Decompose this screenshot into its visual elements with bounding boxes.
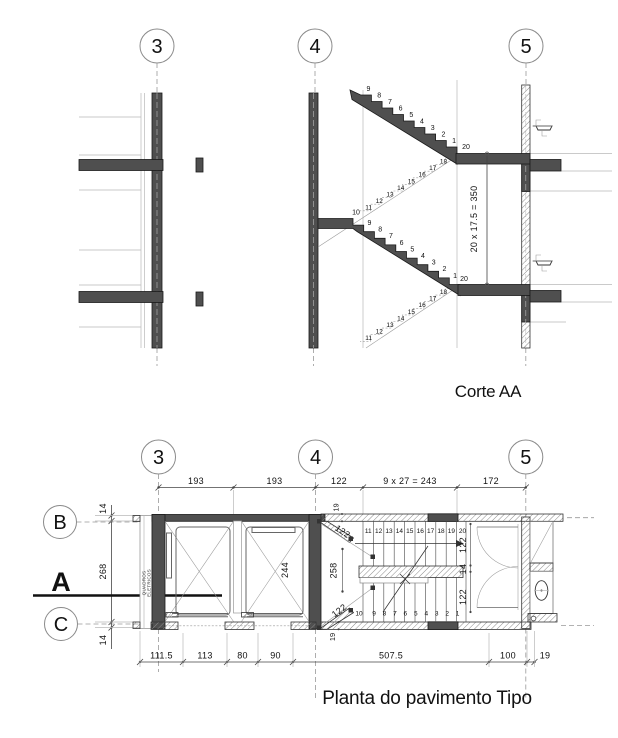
- dimension-label: 14: [98, 503, 108, 514]
- stair-number: 17: [429, 165, 437, 172]
- stair-number: 4: [424, 611, 428, 618]
- wall-row-c-masonry: [321, 622, 531, 629]
- elevator-shaft-1: [165, 521, 234, 621]
- stair-number: 2: [445, 611, 449, 618]
- stair-number: 16: [418, 302, 426, 309]
- stair-rise-dimension: 20 x 17.5 = 350: [469, 152, 489, 286]
- shaft-divider-wall: [234, 521, 242, 613]
- stair-flight-lower: [318, 219, 460, 296]
- stair-number: 3: [431, 125, 435, 132]
- stair-number: 18: [440, 159, 448, 166]
- hidden-upper-numbers: 1817161514131211: [365, 159, 447, 212]
- stair-number: 12: [376, 329, 384, 336]
- door-sill: [291, 622, 316, 630]
- wall-row-b: [152, 515, 325, 522]
- stair-number: 8: [377, 93, 381, 100]
- electrical-niche: QUADROS ELETRICOS: [133, 516, 152, 629]
- elevator-car: [176, 527, 230, 615]
- plan-title: Planta do pavimento Tipo: [322, 688, 532, 709]
- stair-number: 17: [427, 528, 435, 535]
- wall-grid-5: [522, 517, 530, 629]
- dimension-label: 268: [98, 564, 108, 580]
- stair-number: 3: [432, 260, 436, 267]
- plan-bottom-dimensions: 111.5 113 80 90 507.5 100 19: [137, 631, 550, 667]
- wall-grid-4: [309, 515, 321, 630]
- plan-pavimento-tipo: 3 4 5 B C: [33, 440, 594, 709]
- section-corte-aa: 3 4 5: [79, 29, 612, 401]
- grid-label: 3: [151, 36, 162, 58]
- stair-number: 16: [417, 528, 425, 535]
- stair-number: 14: [396, 528, 404, 535]
- stair-number: 11: [365, 335, 372, 342]
- dimension-label: 122: [458, 589, 468, 605]
- stair-number: 7: [393, 611, 397, 618]
- dimension-label: 100: [500, 651, 516, 661]
- wall-column-block: [428, 514, 458, 522]
- dimension-label: 122: [331, 476, 347, 486]
- right-annex: [528, 522, 557, 623]
- stair-number: 4: [421, 253, 425, 260]
- double-door: [477, 524, 518, 610]
- step-number: 10: [352, 210, 360, 217]
- stair-number: 5: [414, 611, 418, 618]
- section-cut-label: A: [51, 567, 71, 597]
- hidden-lower-numbers: 1817161514131211: [365, 289, 447, 342]
- section-title: Corte AA: [455, 382, 522, 401]
- counterweight: [167, 533, 172, 578]
- stair-number: 1: [456, 611, 460, 618]
- stair-number: 2: [441, 132, 445, 139]
- section-grid-bubbles: 3 4 5: [140, 29, 543, 366]
- stair-number: 19: [448, 528, 456, 535]
- dimension-label: 193: [188, 476, 204, 486]
- wall-thickness-label: 19: [332, 503, 341, 511]
- step-number: 20: [462, 144, 470, 151]
- grid-label: 4: [309, 36, 320, 58]
- dimension-label: 9 x 27 = 243: [383, 476, 436, 486]
- stair-number: 18: [437, 528, 445, 535]
- plan-bottom-run-numbers: 987654321: [372, 611, 460, 618]
- stair-number: 8: [378, 227, 382, 234]
- dimension-label: 111.5: [150, 651, 173, 661]
- stair-number: 7: [389, 233, 393, 240]
- floor-slab-level2: [458, 285, 530, 296]
- dimension-label: 14: [458, 564, 468, 575]
- stair-number: 15: [406, 528, 414, 535]
- stair-number: 15: [408, 178, 416, 185]
- sink-icon: [532, 120, 553, 136]
- step-number: 20: [460, 276, 468, 283]
- row-label: C: [54, 614, 68, 636]
- beam-section: [196, 292, 203, 306]
- plan-top-run-numbers: 111213141516171819: [365, 528, 456, 535]
- drawing-canvas: 3 4 5: [0, 0, 618, 738]
- dimension-label: 507.5: [379, 651, 403, 661]
- elevator-block: 244: [151, 515, 325, 630]
- stair-number: 14: [397, 185, 405, 192]
- wall-thickness-label: 19: [328, 633, 337, 641]
- stair-flight-upper: [350, 90, 457, 164]
- dimension-label: 90: [270, 651, 281, 661]
- shaft-dimension: 244: [280, 562, 290, 578]
- plan-top-dimensions: 193 193 122 9 x 27 = 243 172: [156, 476, 529, 514]
- elevator-shaft-2: 244: [242, 521, 310, 621]
- lower-flight-numbers: 987654321: [368, 220, 458, 280]
- wall-left: [152, 515, 165, 630]
- door-sill: [225, 622, 254, 630]
- stair-number: 18: [440, 289, 448, 296]
- beam: [530, 160, 561, 172]
- stair-number: 2: [442, 266, 446, 273]
- wall-column-block: [428, 622, 458, 630]
- stair-number: 14: [397, 315, 405, 322]
- stair-number: 12: [376, 198, 384, 205]
- grid-label: 5: [520, 447, 531, 469]
- stair-number: 7: [388, 99, 392, 106]
- stair-number: 3: [435, 611, 439, 618]
- counterweight: [252, 528, 295, 533]
- dimension-label: 172: [483, 476, 499, 486]
- dimension-label: 122: [458, 537, 468, 553]
- tread-number: 20: [459, 528, 467, 535]
- dimension-label: 193: [267, 476, 283, 486]
- stair-number: 17: [429, 296, 437, 303]
- stair-number: 11: [365, 205, 372, 212]
- stair-number: 1: [453, 273, 457, 280]
- stair-number: 12: [375, 528, 383, 535]
- run-width-dimensions: 122 14 122: [458, 523, 472, 613]
- stair-number: 9: [368, 220, 372, 227]
- stair-number: 16: [418, 172, 426, 179]
- stair-block: 122 122 258 122 14 122 19 19: [317, 503, 563, 641]
- row-label: B: [53, 512, 66, 534]
- electrical-label: ELETRICOS: [147, 569, 152, 597]
- stair-number: 9: [372, 611, 376, 618]
- dimension-label: 113: [197, 651, 212, 661]
- dimension-label: 14: [98, 635, 108, 646]
- stair-number: 8: [383, 611, 387, 618]
- grid-label: 3: [153, 447, 164, 469]
- grid-label: 4: [310, 447, 321, 469]
- stair-number: 6: [404, 611, 408, 618]
- dimension-label: 258: [329, 563, 339, 579]
- stair-number: 5: [410, 246, 414, 253]
- stair-number: 6: [400, 240, 404, 247]
- grid-label: 5: [520, 36, 531, 58]
- stair-number: 13: [386, 192, 394, 199]
- flight-edge: [360, 578, 428, 584]
- dimension-label: 80: [237, 651, 248, 661]
- beam: [530, 291, 561, 303]
- stair-number: 1: [452, 138, 456, 145]
- tread-number: 10: [355, 611, 363, 618]
- architectural-drawing: 3 4 5: [0, 0, 618, 738]
- stair-number: 5: [409, 112, 413, 119]
- stair-number: 9: [367, 86, 371, 93]
- stair-number: 13: [385, 528, 393, 535]
- stair-number: 6: [399, 106, 403, 113]
- floor-slab: [79, 160, 163, 171]
- sink-icon: [532, 255, 553, 271]
- stair-number: 4: [420, 119, 424, 126]
- door-sill: [151, 622, 178, 630]
- dimension-label: 20 x 17.5 = 350: [469, 186, 479, 253]
- beam-section: [196, 158, 203, 172]
- dimension-label: 19: [540, 651, 551, 661]
- stair-number: 13: [386, 322, 394, 329]
- stair-number: 15: [408, 309, 416, 316]
- stair-center-rail: [359, 566, 463, 578]
- floor-slab-level1: [456, 154, 530, 165]
- floor-slab: [79, 292, 163, 303]
- section-cut-marker: A: [33, 567, 222, 597]
- drain-icon: [531, 616, 536, 621]
- stair-number: 11: [365, 528, 372, 535]
